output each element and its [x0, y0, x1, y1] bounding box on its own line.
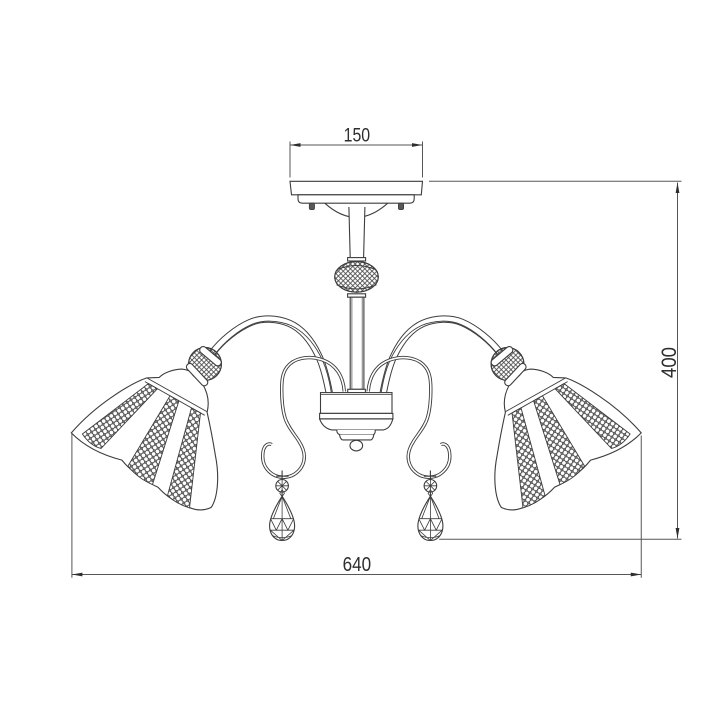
- svg-text:150: 150: [344, 126, 371, 147]
- svg-text:400: 400: [658, 347, 681, 378]
- svg-text:640: 640: [343, 554, 372, 576]
